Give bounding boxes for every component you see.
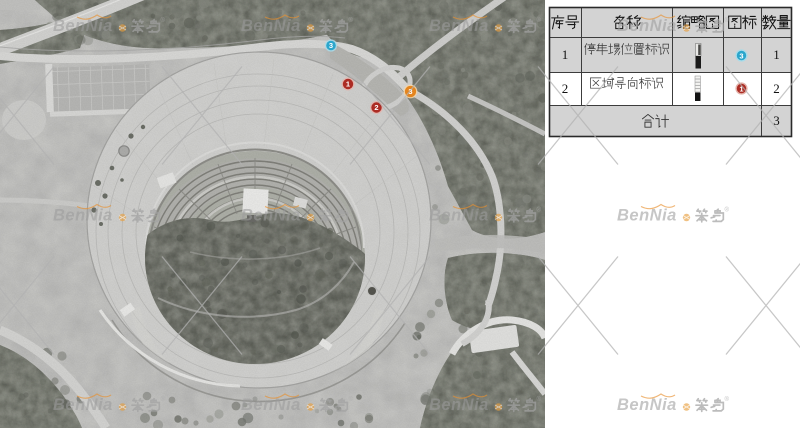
svg-text:3: 3 — [739, 51, 743, 60]
svg-text:2: 2 — [374, 103, 378, 112]
svg-text:2: 2 — [562, 81, 569, 96]
svg-text:2: 2 — [773, 81, 780, 96]
svg-text:1: 1 — [773, 47, 780, 62]
svg-text:1: 1 — [562, 47, 569, 62]
svg-text:1: 1 — [346, 80, 350, 89]
svg-text:3: 3 — [329, 41, 333, 50]
